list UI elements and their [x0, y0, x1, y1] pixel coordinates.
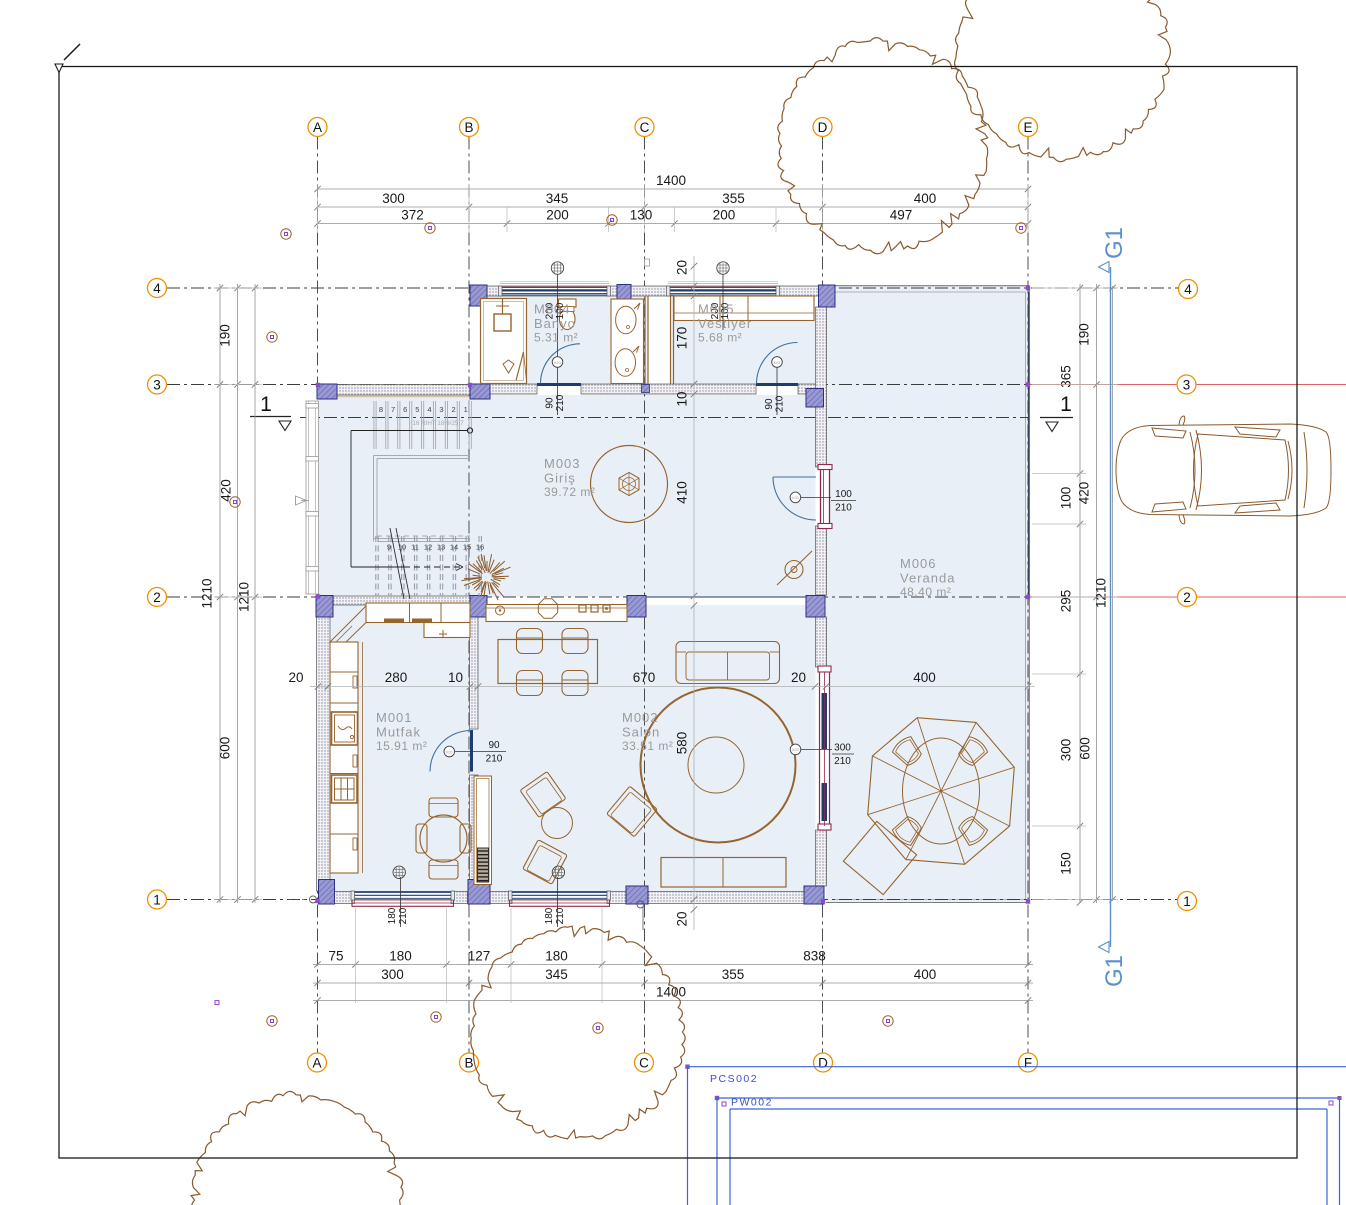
svg-text:295: 295: [1059, 590, 1074, 613]
svg-text:10: 10: [675, 391, 690, 406]
svg-text:170: 170: [675, 327, 690, 350]
svg-text:1210: 1210: [200, 578, 215, 608]
svg-text:20: 20: [288, 670, 303, 685]
svg-text:180: 180: [389, 949, 412, 964]
svg-text:Salon: Salon: [622, 725, 660, 740]
svg-text:6: 6: [403, 405, 407, 414]
svg-text:90: 90: [488, 740, 500, 751]
svg-text:7: 7: [391, 405, 395, 414]
svg-text:3: 3: [1183, 377, 1191, 392]
svg-text:190: 190: [218, 324, 233, 347]
svg-text:600: 600: [1078, 737, 1093, 760]
svg-text:C: C: [640, 120, 650, 135]
svg-text:1400: 1400: [656, 173, 686, 188]
svg-text:300: 300: [834, 743, 851, 754]
svg-text:838: 838: [803, 949, 826, 964]
svg-text:210: 210: [555, 907, 566, 924]
svg-text:400: 400: [914, 967, 937, 982]
svg-text:300: 300: [382, 191, 405, 206]
svg-text:420: 420: [1077, 482, 1092, 505]
svg-text:210: 210: [835, 503, 852, 514]
svg-text:11: 11: [411, 543, 419, 552]
svg-text:9: 9: [387, 543, 391, 552]
svg-text:A: A: [312, 1055, 321, 1070]
svg-text:Veranda: Veranda: [900, 571, 955, 586]
svg-text:1: 1: [1183, 894, 1191, 909]
svg-text:20: 20: [675, 260, 690, 275]
svg-text:K03: K03: [554, 361, 560, 365]
svg-text:3: 3: [439, 405, 443, 414]
svg-text:100: 100: [835, 489, 852, 500]
svg-text:15: 15: [463, 543, 471, 552]
svg-text:A: A: [313, 120, 322, 135]
svg-text:130: 130: [630, 208, 653, 223]
svg-text:410: 410: [675, 481, 690, 504]
svg-text:355: 355: [722, 191, 745, 206]
svg-text:355: 355: [722, 967, 745, 982]
svg-text:12: 12: [424, 543, 432, 552]
svg-text:M001: M001: [376, 710, 413, 725]
svg-text:2: 2: [153, 590, 161, 605]
svg-text:4: 4: [1184, 282, 1192, 297]
svg-text:400: 400: [913, 670, 936, 685]
svg-text:15.91 m²: 15.91 m²: [376, 739, 427, 753]
svg-text:PW002: PW002: [731, 1097, 773, 1109]
svg-text:M004: M004: [534, 302, 571, 317]
svg-text:1: 1: [260, 393, 272, 416]
svg-text:210: 210: [555, 394, 566, 411]
svg-text:2: 2: [452, 405, 456, 414]
svg-text:B: B: [464, 120, 473, 135]
svg-text:497: 497: [890, 208, 913, 223]
svg-text:150: 150: [1059, 852, 1074, 875]
svg-text:Giriş: Giriş: [544, 471, 576, 486]
svg-text:PCS002: PCS002: [710, 1073, 758, 1085]
svg-text:B: B: [464, 1055, 473, 1070]
svg-text:75: 75: [328, 949, 343, 964]
svg-text:200: 200: [546, 208, 569, 223]
svg-text:10: 10: [448, 670, 463, 685]
svg-text:Vestiyer: Vestiyer: [698, 316, 752, 331]
svg-text:33.51 m²: 33.51 m²: [622, 739, 673, 753]
svg-text:K03: K03: [792, 748, 798, 752]
svg-text:20: 20: [791, 670, 806, 685]
svg-text:F: F: [1024, 1055, 1032, 1070]
svg-text:400: 400: [914, 191, 937, 206]
svg-text:1210: 1210: [1094, 578, 1109, 608]
svg-text:K03: K03: [774, 361, 780, 365]
svg-text:90: 90: [764, 398, 775, 410]
svg-text:372: 372: [401, 208, 424, 223]
svg-text:M002: M002: [622, 710, 659, 725]
svg-text:345: 345: [545, 967, 568, 982]
svg-text:14: 14: [450, 543, 458, 552]
svg-text:E: E: [1023, 120, 1032, 135]
svg-text:210: 210: [486, 754, 503, 765]
svg-text:13: 13: [437, 543, 445, 552]
svg-text:90: 90: [545, 397, 556, 409]
svg-text:210: 210: [834, 756, 851, 767]
svg-text:1: 1: [153, 892, 161, 907]
svg-text:300: 300: [381, 967, 404, 982]
svg-text:16 RIHT 18,9/25,7: 16 RIHT 18,9/25,7: [412, 420, 464, 427]
svg-text:210: 210: [775, 395, 786, 412]
svg-text:180: 180: [544, 907, 555, 924]
svg-text:20: 20: [675, 911, 690, 926]
svg-text:100: 100: [1059, 487, 1074, 510]
svg-text:C: C: [639, 1055, 649, 1070]
svg-text:1: 1: [464, 405, 468, 414]
svg-text:8: 8: [379, 405, 383, 414]
svg-text:16: 16: [476, 543, 484, 552]
svg-text:G1: G1: [1101, 227, 1128, 259]
svg-text:280: 280: [385, 670, 408, 685]
svg-text:670: 670: [633, 670, 656, 685]
svg-text:3: 3: [153, 377, 161, 392]
svg-text:Mutfak: Mutfak: [376, 725, 421, 740]
svg-text:4: 4: [427, 405, 431, 414]
svg-text:5.68 m²: 5.68 m²: [698, 331, 742, 345]
svg-text:210: 210: [398, 907, 409, 924]
svg-text:M005: M005: [698, 302, 735, 317]
svg-text:M006: M006: [900, 556, 937, 571]
svg-text:M003: M003: [544, 456, 581, 471]
svg-text:180: 180: [387, 907, 398, 924]
svg-text:K03: K03: [792, 496, 798, 500]
svg-text:G1: G1: [1101, 955, 1128, 987]
svg-text:D: D: [818, 1055, 828, 1070]
svg-text:5.31 m²: 5.31 m²: [534, 331, 578, 345]
svg-text:600: 600: [218, 737, 233, 760]
svg-text:1400: 1400: [656, 985, 686, 1000]
svg-text:K03: K03: [446, 750, 452, 754]
svg-text:200: 200: [713, 208, 736, 223]
svg-text:39.72 m²: 39.72 m²: [544, 485, 595, 499]
svg-text:580: 580: [675, 732, 690, 755]
svg-text:48.40 m²: 48.40 m²: [900, 585, 951, 599]
svg-text:2: 2: [1183, 590, 1191, 605]
svg-text:127: 127: [468, 949, 491, 964]
svg-text:D: D: [818, 120, 828, 135]
svg-text:4: 4: [153, 281, 161, 296]
svg-text:1: 1: [1060, 393, 1072, 416]
svg-text:5: 5: [415, 405, 419, 414]
svg-text:Banyo: Banyo: [534, 316, 576, 331]
svg-text:300: 300: [1059, 739, 1074, 762]
svg-text:190: 190: [1077, 323, 1092, 346]
svg-text:180: 180: [545, 949, 568, 964]
svg-text:345: 345: [546, 191, 569, 206]
